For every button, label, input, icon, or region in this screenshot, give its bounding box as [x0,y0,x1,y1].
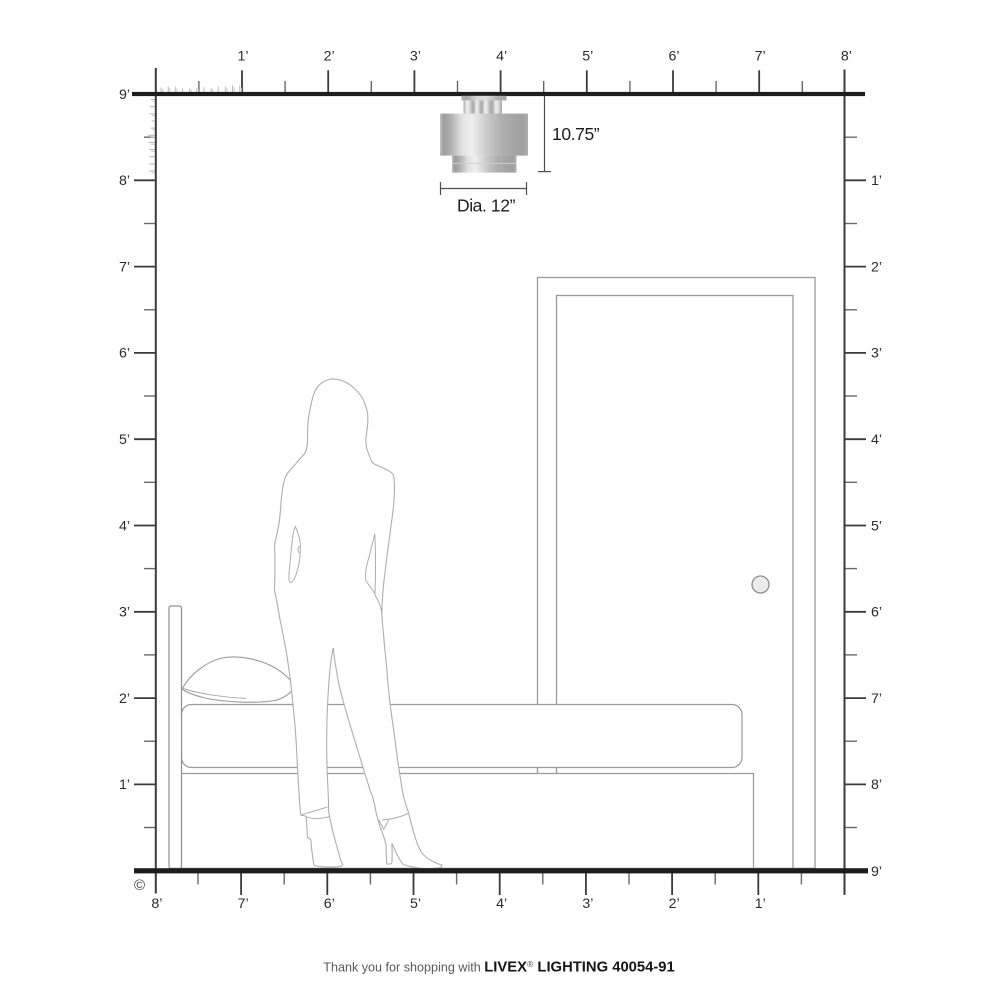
svg-text:6’: 6’ [668,49,679,65]
svg-text:5’: 5’ [871,518,882,534]
svg-text:7’: 7’ [119,259,130,275]
svg-text:1’: 1’ [119,777,130,793]
svg-text:9’: 9’ [871,864,882,880]
svg-text:8’: 8’ [841,49,852,65]
svg-text:7’: 7’ [871,691,882,707]
svg-text:6’: 6’ [324,896,335,912]
svg-text:8’: 8’ [871,777,882,793]
svg-text:6’: 6’ [871,605,882,621]
svg-text:2’: 2’ [324,49,335,65]
svg-text:9’: 9’ [119,87,130,103]
svg-text:10.75”: 10.75” [552,124,600,144]
svg-text:5’: 5’ [119,432,130,448]
svg-text:7’: 7’ [238,896,249,912]
svg-text:3’: 3’ [119,605,130,621]
svg-text:5’: 5’ [410,896,421,912]
svg-text:8’: 8’ [151,896,162,912]
svg-text:6’: 6’ [119,346,130,362]
svg-text:4’: 4’ [119,518,130,534]
svg-text:2’: 2’ [119,691,130,707]
svg-text:1’: 1’ [755,896,766,912]
svg-text:3’: 3’ [582,896,593,912]
svg-text:1’: 1’ [237,49,248,65]
svg-text:4’: 4’ [496,49,507,65]
svg-text:Dia. 12”: Dia. 12” [457,196,516,216]
svg-text:Thank you for shopping with LI: Thank you for shopping with LIVEX® LIGHT… [323,959,675,976]
svg-text:5’: 5’ [582,49,593,65]
svg-text:7’: 7’ [755,49,766,65]
svg-text:3’: 3’ [410,49,421,65]
svg-text:2’: 2’ [871,259,882,275]
svg-text:4’: 4’ [871,432,882,448]
svg-text:3’: 3’ [871,346,882,362]
svg-text:©: © [134,877,145,894]
svg-text:2’: 2’ [669,896,680,912]
svg-text:8’: 8’ [119,173,130,189]
svg-text:1’: 1’ [871,173,882,189]
svg-text:4’: 4’ [496,896,507,912]
